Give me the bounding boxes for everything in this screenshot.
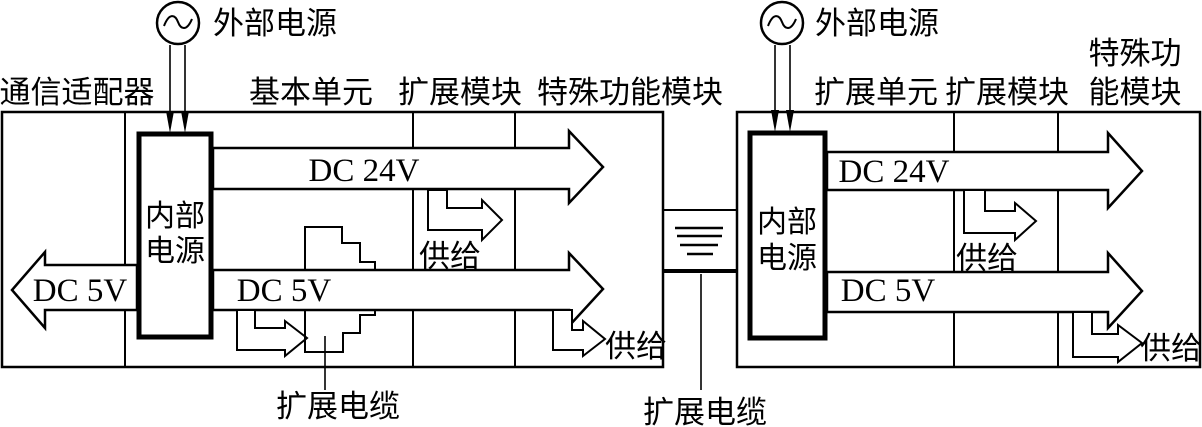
right-dc5v-label: DC 5V xyxy=(841,273,936,309)
header-comm-adapter: 通信适配器 xyxy=(0,75,155,110)
cable-ribbon-icon xyxy=(675,228,723,254)
right-internal-power-line2: 电源 xyxy=(757,242,817,275)
right-dc24v-label: DC 24V xyxy=(839,154,950,190)
ac-wave-icon xyxy=(768,16,796,28)
right-supply-upper-arrow xyxy=(964,190,1036,240)
header-special-function-right-line2: 能模块 xyxy=(1089,75,1182,110)
right-wire-arrowhead-1 xyxy=(771,110,779,132)
left-supply-upper-arrow xyxy=(428,190,502,240)
center-expansion-cable-label: 扩展电缆 xyxy=(643,395,767,427)
ac-wave-icon xyxy=(164,16,192,28)
right-supply-upper-label: 供给 xyxy=(956,241,1018,276)
left-cable-feed-arrow xyxy=(237,310,307,356)
plc-power-supply-diagram: 外部电源 通信适配器 基本单元 扩展模块 特殊功能模块 内部 电源 DC 24V… xyxy=(0,0,1202,427)
right-internal-power-line1: 内部 xyxy=(757,206,817,239)
right-ext-power-label: 外部电源 xyxy=(815,6,939,41)
expansion-cable-zigzag-top xyxy=(305,227,375,270)
header-basic-unit: 基本单元 xyxy=(249,75,373,110)
left-wire-arrowhead-1 xyxy=(166,111,174,133)
left-internal-power-line1: 内部 xyxy=(145,200,205,233)
header-expansion-module-right: 扩展模块 xyxy=(945,75,1069,110)
expansion-cable-zigzag-bottom xyxy=(305,310,375,352)
left-ext-power-label: 外部电源 xyxy=(213,6,337,41)
header-expansion-unit: 扩展单元 xyxy=(814,75,938,110)
left-supply-lower-label: 供给 xyxy=(605,329,667,364)
header-expansion-module-left: 扩展模块 xyxy=(398,75,522,110)
left-expansion-cable-label: 扩展电缆 xyxy=(276,389,400,424)
left-unit: 外部电源 通信适配器 基本单元 扩展模块 特殊功能模块 内部 电源 DC 24V… xyxy=(0,2,723,424)
right-unit: 外部电源 扩展单元 扩展模块 特殊功 能模块 内部 电源 DC 24V DC 5… xyxy=(737,2,1202,367)
right-supply-lower-label: 供给 xyxy=(1140,331,1202,366)
header-special-function-right-line1: 特殊功 xyxy=(1089,36,1182,71)
left-dc5v-left-label: DC 5V xyxy=(33,273,128,309)
right-wire-arrowhead-2 xyxy=(786,110,794,132)
header-special-function-left: 特殊功能模块 xyxy=(537,75,723,110)
left-supply-upper-label: 供给 xyxy=(419,239,481,274)
left-dc5v-out-label: DC 5V xyxy=(237,273,332,309)
left-dc24v-label: DC 24V xyxy=(309,153,420,189)
left-wire-arrowhead-2 xyxy=(181,111,189,133)
left-internal-power-line2: 电源 xyxy=(145,235,205,268)
